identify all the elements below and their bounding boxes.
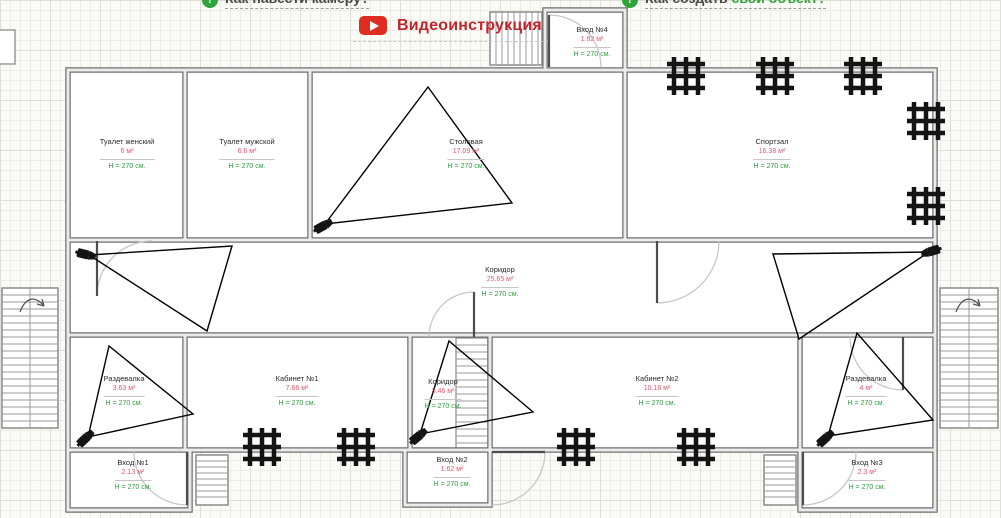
room-area: 2.3 м²: [849, 468, 886, 481]
room-height: H = 270 см.: [100, 160, 155, 172]
room-label-razdevalka-left[interactable]: Раздевалка 3.63 м² H = 270 см.: [104, 373, 145, 409]
room-height: H = 270 см.: [754, 160, 791, 172]
youtube-play-icon: [359, 16, 387, 35]
room-label-kabinet-2[interactable]: Кабинет №2 10.16 м² H = 270 см.: [636, 373, 679, 409]
room-name: Туалет мужской: [219, 136, 274, 147]
room-label-stolovaya[interactable]: Столовая 17.09 м² H = 270 см.: [448, 136, 485, 172]
room-height: H = 270 см.: [115, 481, 152, 493]
room-area: 3.46 м²: [425, 387, 462, 400]
room-area: 25.65 м²: [482, 275, 519, 288]
room-name: Вход №4: [574, 24, 611, 35]
room-name: Вход №2: [434, 454, 471, 465]
floorplan-editor-canvas: ? Как навести камеру? ? Как создать свой…: [0, 0, 1001, 518]
room-name: Раздевалка: [846, 373, 887, 384]
room-area: 4 м²: [846, 384, 887, 397]
room-height: H = 270 см.: [574, 48, 611, 60]
room-area: 16.38 м²: [754, 147, 791, 160]
room-area: 10.16 м²: [636, 384, 679, 397]
room-height: H = 270 см.: [434, 478, 471, 490]
room-name: Коридор: [425, 376, 462, 387]
room-name: Вход №1: [115, 457, 152, 468]
room-name: Раздевалка: [104, 373, 145, 384]
room-label-koridor-small[interactable]: Коридор 3.46 м² H = 270 см.: [425, 376, 462, 412]
room-area: 3.63 м²: [104, 384, 145, 397]
room-area: 7.66 м²: [276, 384, 319, 397]
room-area: 17.09 м²: [448, 147, 485, 160]
room-area: 2.13 м²: [115, 468, 152, 481]
room-label-vhod-1[interactable]: Вход №1 2.13 м² H = 270 см.: [115, 457, 152, 493]
room-area: 6.6 м²: [219, 147, 274, 160]
room-height: H = 270 см.: [849, 481, 886, 493]
room-height: H = 270 см.: [448, 160, 485, 172]
room-name: Спортзал: [754, 136, 791, 147]
left-edge-structure: [0, 30, 15, 64]
help-link-label: Как создать свой объект?: [645, 0, 826, 9]
room-height: H = 270 см.: [425, 400, 462, 412]
room-height: H = 270 см.: [276, 397, 319, 409]
room-name: Столовая: [448, 136, 485, 147]
help-link-create-object[interactable]: ? Как создать свой объект?: [622, 0, 826, 9]
room-label-vhod-4[interactable]: Вход №4 1.82 м² H = 270 см.: [574, 24, 611, 60]
top-help-links-row: ? Как навести камеру? ? Как создать свой…: [0, 0, 1001, 13]
room-label-koridor[interactable]: Коридор 25.65 м² H = 270 см.: [482, 264, 519, 300]
room-name: Туалет женский: [100, 136, 155, 147]
room-height: H = 270 см.: [219, 160, 274, 172]
room-label-sportzal[interactable]: Спортзал 16.38 м² H = 270 см.: [754, 136, 791, 172]
video-instruction-label: Видеоинструкция: [397, 17, 542, 35]
floor-plan: [0, 0, 1001, 518]
question-icon: ?: [622, 0, 638, 8]
room-area: 1.62 м²: [434, 465, 471, 478]
room-label-razdevalka-right[interactable]: Раздевалка 4 м² H = 270 см.: [846, 373, 887, 409]
room-area: 1.82 м²: [574, 35, 611, 48]
room-label-tualet-muzhskoy[interactable]: Туалет мужской 6.6 м² H = 270 см.: [219, 136, 274, 172]
room-height: H = 270 см.: [636, 397, 679, 409]
room-label-vhod-3[interactable]: Вход №3 2.3 м² H = 270 см.: [849, 457, 886, 493]
video-instruction-button[interactable]: Видеоинструкция: [353, 16, 548, 42]
room-label-kabinet-1[interactable]: Кабинет №1 7.66 м² H = 270 см.: [276, 373, 319, 409]
room-name: Коридор: [482, 264, 519, 275]
question-icon: ?: [202, 0, 218, 8]
help-link-aim-camera[interactable]: ? Как навести камеру?: [202, 0, 369, 9]
room-label-vhod-2[interactable]: Вход №2 1.62 м² H = 270 см.: [434, 454, 471, 490]
help-link-label: Как навести камеру?: [225, 0, 369, 9]
room-floors: [68, 10, 935, 510]
room-name: Кабинет №1: [276, 373, 319, 384]
room-height: H = 270 см.: [104, 397, 145, 409]
room-name: Кабинет №2: [636, 373, 679, 384]
room-name: Вход №3: [849, 457, 886, 468]
room-height: H = 270 см.: [482, 288, 519, 300]
room-area: 6 м²: [100, 147, 155, 160]
room-label-tualet-zhenskiy[interactable]: Туалет женский 6 м² H = 270 см.: [100, 136, 155, 172]
room-height: H = 270 см.: [846, 397, 887, 409]
